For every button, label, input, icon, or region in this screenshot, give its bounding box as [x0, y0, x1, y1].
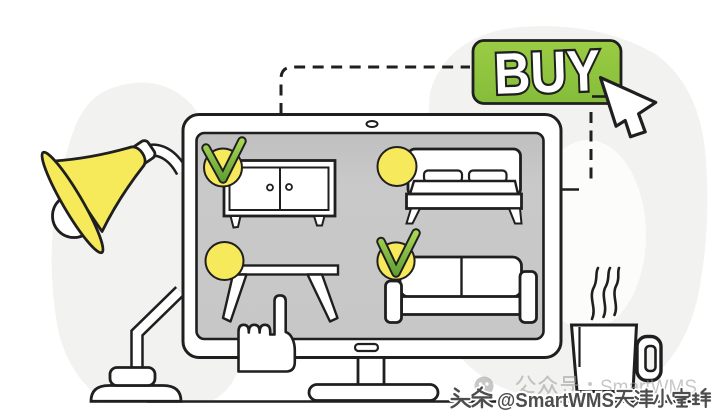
svg-text:@SmartWMS: @SmartWMS [497, 389, 614, 412]
svg-text:BUY: BUY [493, 38, 601, 107]
